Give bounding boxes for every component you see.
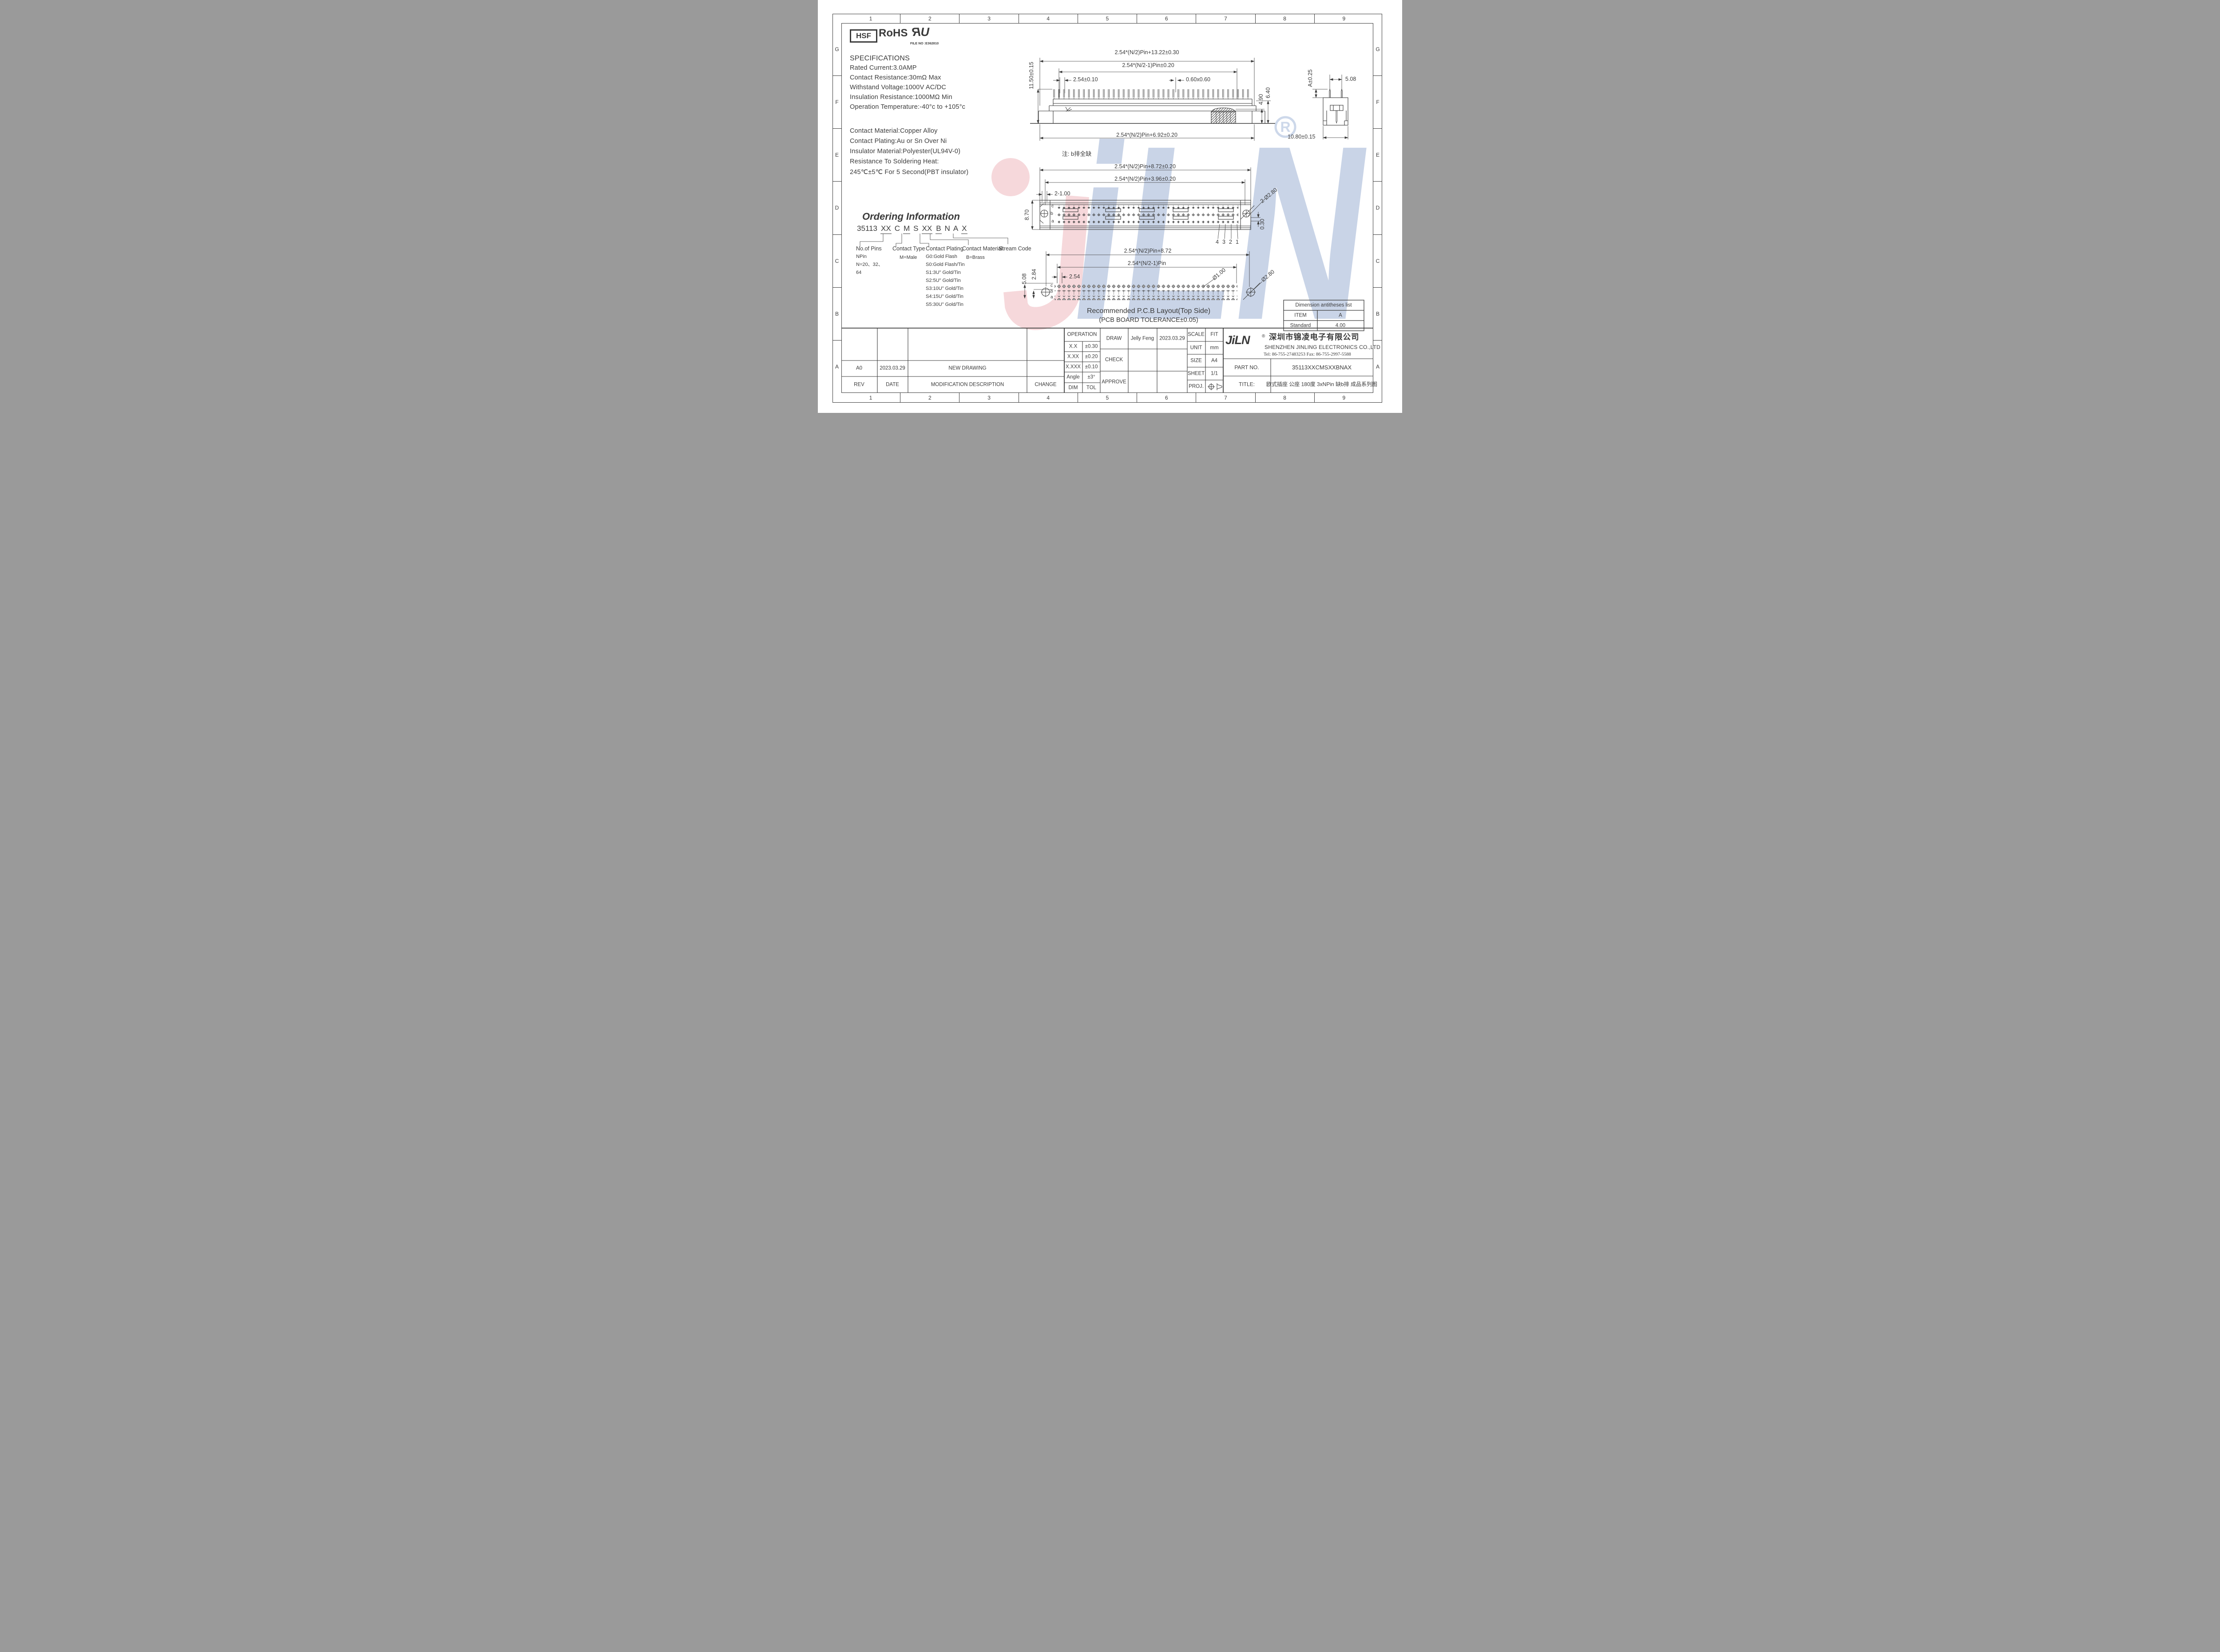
ul-icon: RU: [912, 26, 929, 39]
dim-table-cell: A: [1339, 313, 1342, 319]
dim-label: 10.80±0.15: [1288, 134, 1315, 140]
note-b-row: 注: b排全缺: [1062, 151, 1091, 157]
tol-cell: X.XX: [1067, 354, 1079, 360]
dim-label: 2.54±0.10: [1073, 77, 1098, 83]
spec-line: Insulator Material:Polyester(UL94V-0): [850, 148, 960, 155]
dim-table-cell: Standard: [1290, 323, 1311, 329]
rev-desc: NEW DRAWING: [948, 366, 986, 372]
row-label: a: [1051, 219, 1054, 224]
field-detail: S2:5U" Gold/Tin: [926, 278, 961, 283]
dim-label: 2.54*(N/2)Pin+13.22±0.30: [1115, 50, 1179, 56]
draw-date: 2023.03.29: [1159, 336, 1185, 342]
scale-value: FIT: [1210, 332, 1218, 338]
part-no-value: 35113XXCMSXXBNAX: [1292, 364, 1352, 371]
proj-label: PROJ.: [1189, 384, 1204, 390]
field-detail: S0:Gold Flash/Tin: [926, 262, 965, 267]
spec-line: 245℃±5℃ For 5 Second(PBT insulator): [850, 169, 968, 176]
row-label: c: [1051, 204, 1054, 209]
ordering-title: Ordering Information: [862, 211, 960, 222]
spec-line: Rated Current:3.0AMP: [850, 65, 917, 72]
rev-date: 2023.03.29: [880, 366, 905, 372]
spec-line: Contact Plating:Au or Sn Over Ni: [850, 138, 947, 145]
pcb-caption: (PCB BOARD TOLERANCE±0.05): [1099, 317, 1198, 324]
dim-label: A±0.25: [1308, 69, 1314, 87]
tol-cell: ±0.20: [1085, 354, 1098, 360]
title-label: TITLE:: [1239, 381, 1255, 387]
field-detail: G0:Gold Flash: [926, 254, 957, 259]
field-detail: S3:10U" Gold/Tin: [926, 286, 963, 291]
spec-line: Contact Material:Copper Alloy: [850, 128, 938, 135]
spec-line: Withstand Voltage:1000V AC/DC: [850, 84, 946, 91]
tol-cell: ±0.30: [1085, 344, 1098, 350]
draw-name: Jelly Feng: [1131, 336, 1154, 342]
pin-number: 2: [1229, 239, 1232, 246]
ruler-cell: 1: [841, 14, 900, 23]
pin-number: 1: [1236, 239, 1239, 246]
field-detail: B=Brass: [966, 255, 985, 260]
field-detail: S4:15U" Gold/Tin: [926, 294, 963, 299]
company-name-en: SHENZHEN JINLING ELECTRONICS CO.,LTD: [1265, 345, 1380, 350]
tol-cell: ±3°: [1087, 375, 1095, 380]
tol-cell: Angle: [1066, 375, 1079, 380]
ruler-right: GFEDCBA: [1373, 23, 1382, 393]
field-label: Stream Code: [999, 246, 1031, 252]
spec-line: Resistance To Soldering Heat:: [850, 158, 939, 166]
field-label: Contact Type: [892, 246, 925, 252]
dim-label: 5.08: [1345, 76, 1356, 83]
size-value: A4: [1211, 358, 1217, 364]
ruler-top: 123456789: [841, 14, 1373, 23]
pcb-caption: Recommended P.C.B Layout(Top Side): [1087, 307, 1210, 315]
scale-label: SCALE: [1188, 332, 1205, 338]
check-label: CHECK: [1105, 357, 1123, 363]
dim-table-cell: ITEM: [1294, 313, 1306, 319]
rohs-logo: RoHS: [879, 28, 908, 39]
registered-icon: ®: [1262, 334, 1265, 339]
tol-cell: DIM: [1068, 385, 1078, 391]
jiln-logo: JiLN: [1225, 334, 1250, 347]
field-label: No.of Pins: [856, 246, 882, 252]
unit-label: UNIT: [1190, 345, 1202, 351]
dim-label: 0.60x0.60: [1186, 77, 1210, 83]
dim-label: 4.90: [1258, 94, 1265, 105]
company-name-cn: 深圳市锦凌电子有限公司: [1269, 333, 1360, 341]
spec-line: Contact Resistance:30mΩ Max: [850, 75, 941, 82]
dim-label: 2.84: [1031, 269, 1038, 280]
field-detail: M=Male: [900, 255, 917, 260]
dim-label: 11.50±0.15: [1029, 62, 1035, 89]
dim-label: 2.54*(N/2)Pin+3.96±0.20: [1114, 176, 1176, 182]
part-no-label: PART NO.: [1234, 364, 1259, 370]
approve-label: APPROVE: [1102, 380, 1126, 385]
field-detail: S5:30U" Gold/Tin: [926, 302, 963, 307]
row-label: b: [1051, 289, 1053, 294]
dim-table-cell: 4.00: [1336, 323, 1345, 329]
rev-header: MODIFICATION DESCRIPTION: [931, 382, 1004, 388]
dim-label: 2.54*(N/2-1)Pin: [1128, 261, 1166, 267]
dim-label: 5.08: [1022, 273, 1028, 284]
rev-header: REV: [854, 382, 864, 388]
dim-label: 2.54*(N/2)Pin+8.72: [1124, 248, 1172, 254]
field-detail: 64: [856, 270, 861, 275]
row-label: a: [1051, 295, 1053, 300]
ul-file-no: FILE NO :E362810: [910, 42, 939, 45]
rev-header: CHANGE: [1035, 382, 1056, 388]
dim-label: 2.54: [1069, 274, 1080, 280]
tol-cell: TOL: [1086, 385, 1096, 391]
dim-label: 2.54*(N/2-1)Pin±0.20: [1122, 63, 1174, 69]
ruler-bottom: 123456789: [841, 393, 1373, 403]
field-label: Contact Material: [962, 246, 1003, 252]
dim-table-title: Dimension antitheses list: [1295, 303, 1352, 309]
unit-value: mm: [1210, 345, 1218, 351]
dim-label: 8.70: [1024, 210, 1031, 220]
sheet-value: 1/1: [1211, 371, 1218, 377]
dim-label: 2.54*(N/2)Pin+8.72±0.20: [1114, 164, 1176, 170]
part-number-code: 35113XXCMSXXBNAX: [857, 224, 967, 234]
dim-label: 2-1.00: [1054, 191, 1070, 197]
spec-line: Operation Temperature:-40°c to +105°c: [850, 104, 965, 111]
tol-cell: X.X: [1069, 344, 1078, 350]
field-detail: NPin: [856, 254, 867, 259]
hsf-logo: HSF: [850, 29, 877, 43]
title-value: 欧式插座 公座 180度 3xNPin 缺b排 成品系列图: [1266, 381, 1377, 387]
company-tel: Tel: 86-755-27483253 Fax: 86-755-2997-55…: [1264, 352, 1351, 357]
rev-header: DATE: [886, 382, 899, 388]
tol-cell: X.XXX: [1066, 364, 1081, 370]
operation-header: OPERATION: [1067, 332, 1097, 338]
rev-value: A0: [856, 366, 862, 372]
row-label: c: [1051, 283, 1053, 288]
row-label: b: [1051, 211, 1053, 217]
size-label: SIZE: [1190, 358, 1202, 364]
tol-cell: ±0.10: [1085, 364, 1098, 370]
spec-line: Insulation Resistance:1000MΩ Min: [850, 94, 952, 101]
field-label: Contact Plating: [926, 246, 963, 252]
specs-title: SPECIFICATIONS: [850, 55, 910, 63]
dim-label: 2.54*(N/2)Pin+6.92±0.20: [1116, 132, 1177, 139]
field-detail: N=20、32、: [856, 262, 883, 267]
pin-number: 4: [1216, 239, 1219, 246]
pin-number: 3: [1222, 239, 1225, 246]
sheet-label: SHEET: [1188, 371, 1205, 377]
dim-label: 0.30: [1260, 219, 1266, 230]
draw-label: DRAW: [1106, 336, 1122, 342]
field-detail: S1:3U" Gold/Tin: [926, 270, 961, 275]
drawing-sheet: iLN R: [818, 0, 1402, 413]
dim-label: 6.40: [1265, 87, 1272, 98]
ruler-left: GFEDCBA: [832, 23, 841, 393]
